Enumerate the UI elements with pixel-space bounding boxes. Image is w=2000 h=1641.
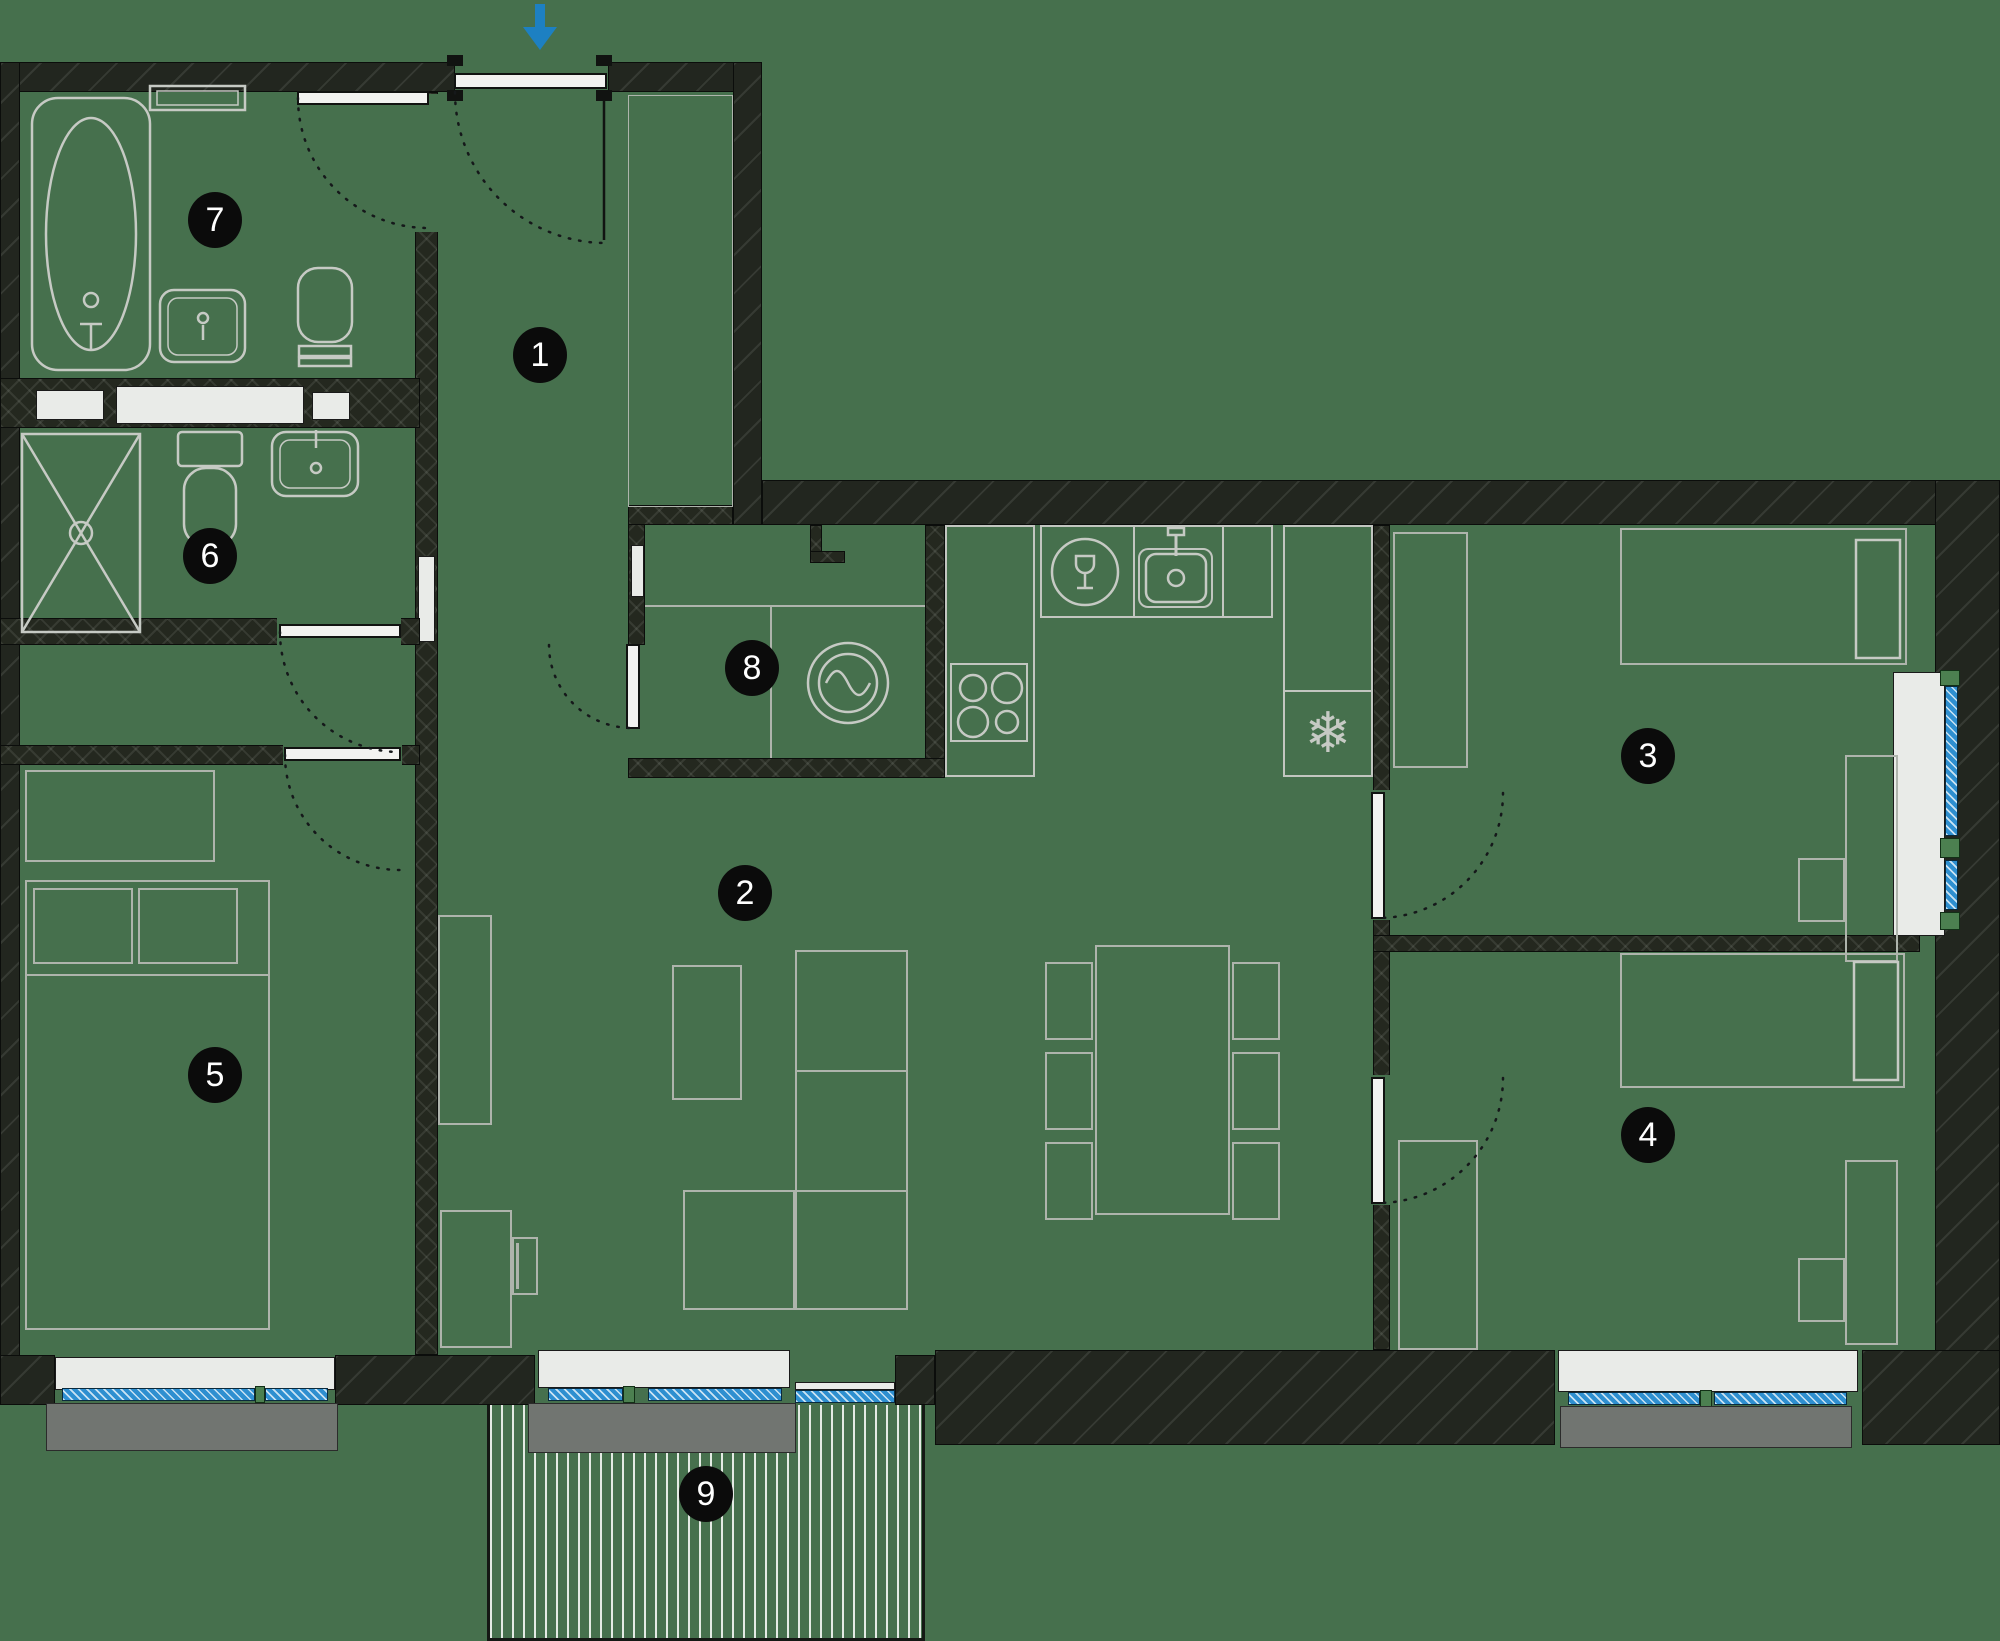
window-bedroom5-glazing-2 [265,1388,328,1401]
window-bedroom5-sill [55,1357,335,1390]
window-bedroom4-glazing-2 [1714,1392,1847,1405]
bedroom3-door-swing [1378,793,1503,918]
bedroom4-desk [1845,1160,1898,1345]
room-badge-terrace: 9 [679,1466,733,1522]
tv-screen-line [516,1243,519,1289]
window-bedroom3-glazing-2 [1945,860,1958,910]
sofa-seat-line-2 [797,1190,906,1192]
wall-bottom-right-a [935,1350,1555,1445]
dining-chair [1232,962,1280,1040]
hob-box [950,663,1028,742]
toilet-icon [298,268,352,342]
room-number: 6 [201,537,220,576]
door-opening-bedroom4 [1373,1075,1390,1205]
room-number: 8 [743,649,762,688]
window-bedroom5-frame [255,1386,265,1403]
kitchen-counter-divider-2 [1222,527,1224,616]
room-badge-bedroom5: 5 [188,1047,242,1103]
shower-room-door-swing [280,632,400,752]
wall-top-right-block [762,480,2000,525]
bath-divider-niche-3 [312,392,350,420]
wall-niche-storage [631,545,644,597]
window-living-sill [538,1350,790,1388]
bedroom3-wardrobe [1393,532,1468,768]
wall-left [0,62,20,1405]
sofa-corner-section [683,1190,795,1310]
wall-bedroom3-4-divider [1373,935,1920,952]
sofa-right-section [795,950,908,1310]
dining-chair [1045,962,1093,1040]
bedroom5-door-swing [285,755,400,870]
toilet-icon [178,432,242,466]
room-badge-bathroom: 7 [188,192,242,248]
storage-door-swing [549,645,632,728]
bedroom4-bed [1620,953,1905,1088]
room-number: 4 [1639,1116,1658,1155]
wall-bottom-left-c [895,1355,935,1405]
door-opening-bedroom5 [283,745,402,765]
window-bedroom5-outer-sill [46,1403,338,1451]
room-badge-hall: 1 [513,327,567,383]
wall-storage-top [628,505,733,525]
room-badge-bedroom3: 3 [1621,728,1675,784]
kitchen-sink-box [1138,548,1213,608]
window-living-frame [623,1386,635,1403]
bathroom-door-swing [298,98,428,228]
tv-stand [440,1210,512,1348]
fridge-divider [1285,690,1371,692]
bedroom4-wardrobe [1398,1140,1478,1350]
dining-chair [1232,1052,1280,1130]
terrace-door-frame [795,1382,895,1390]
bedroom3-chair [1798,858,1845,922]
bedroom5-pillow [33,888,133,964]
entrance-door-leaf [455,74,606,88]
bedroom5-pillow [138,888,238,964]
door-opening-bathroom [415,94,438,232]
entrance-arrow-icon [523,4,557,50]
dining-table [1095,945,1230,1215]
window-bedroom5-glazing-1 [62,1388,255,1401]
wall-hall-right [733,62,762,525]
washing-machine-icon [808,643,888,723]
wall-bottom-right-b [1862,1350,2000,1445]
window-bedroom4-glazing-1 [1568,1392,1700,1405]
window-living-glazing-1 [548,1388,623,1401]
wall-right [1935,480,2000,1445]
room-badge-shower-room: 6 [183,528,237,584]
dining-chair [1232,1142,1280,1220]
terrace-door-glazing [795,1390,895,1403]
bedroom3-desk [1845,755,1898,962]
wall-stub-kitchen-b [810,551,845,563]
window-bedroom4-outer-sill [1560,1406,1852,1448]
room-badge-storage: 8 [725,640,779,696]
storage-shelf-line-h [645,605,925,607]
wall-bathblock-right [415,92,438,1355]
bedroom5-bed-line [25,974,270,976]
room-number: 5 [206,1056,225,1095]
wall-bottom-left-b [335,1355,535,1405]
storage-door-leaf [627,645,639,728]
kitchen-counter-divider-1 [1133,527,1135,616]
door-opening-shower-room [277,618,401,645]
floor-plan: ❄ [0,0,2000,1641]
living-cabinet [438,915,492,1125]
wall-bottom-left-a [0,1355,55,1405]
coffee-table [672,965,742,1100]
dining-chair [1045,1142,1093,1220]
room-number: 7 [206,201,225,240]
dining-chair [1045,1052,1093,1130]
window-bedroom3-sill [1893,672,1945,936]
bathtub-icon [32,98,150,370]
bath-divider-niche-2 [116,386,304,424]
window-bedroom3-frame-b [1940,838,1960,858]
room-number: 1 [531,336,550,375]
room-badge-living: 2 [718,865,772,921]
room-number: 2 [736,874,755,913]
bedroom5-wardrobe [25,770,215,862]
entrance-door-swing [455,92,606,243]
shower-icon [22,434,140,632]
window-bedroom3-frame-c [1940,912,1960,930]
wall-storage-right [925,525,945,778]
bedroom4-chair [1798,1258,1845,1322]
window-bedroom3-glazing-1 [1945,686,1958,836]
sink-icon [272,432,358,496]
room-number: 9 [697,1475,716,1514]
bathroom-door-leaf [298,92,428,104]
window-living-glazing-2 [648,1388,782,1401]
hall-closet [628,95,733,507]
window-bedroom3-frame-a [1940,670,1960,686]
sink-icon [160,290,245,362]
window-bedroom4-sill [1558,1350,1858,1392]
fridge-column [1283,525,1373,777]
window-living-outer-sill [528,1403,796,1453]
room-badge-bedroom4: 4 [1621,1107,1675,1163]
bath-divider-niche-1 [36,390,104,420]
room-number: 3 [1639,737,1658,776]
wall-storage-bottom [628,758,945,778]
wall-niche-shower-room [418,556,435,642]
bedroom3-bed [1620,528,1907,665]
window-bedroom4-frame [1700,1390,1712,1407]
wall-top-left [0,62,455,92]
door-opening-bedroom3 [1373,790,1390,920]
sofa-seat-line-1 [797,1070,906,1072]
